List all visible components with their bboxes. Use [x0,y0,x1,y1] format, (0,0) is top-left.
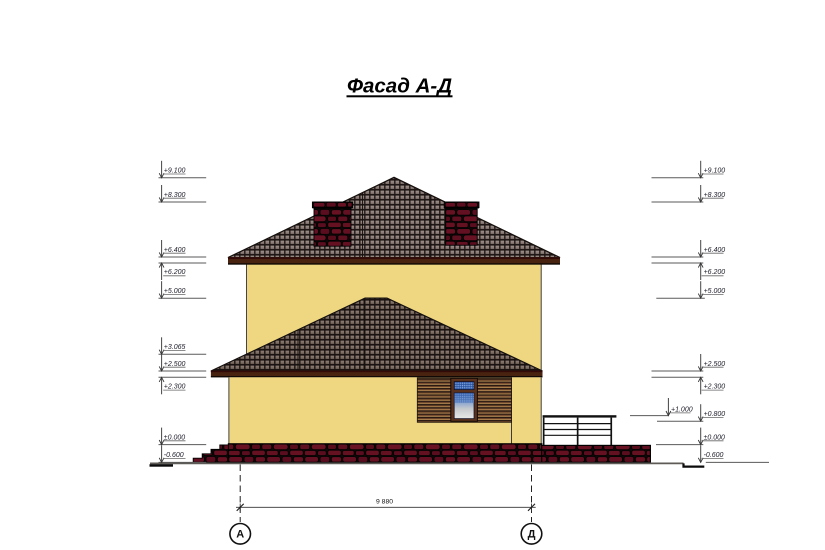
svg-text:+6.400: +6.400 [164,247,186,254]
svg-text:+6.400: +6.400 [704,247,726,254]
svg-text:+5.000: +5.000 [164,288,186,295]
svg-text:+8.300: +8.300 [164,192,186,199]
svg-text:-0.600: -0.600 [164,452,184,459]
svg-text:±0.000: ±0.000 [164,434,185,441]
svg-text:-0.600: -0.600 [704,452,724,459]
svg-text:+5.000: +5.000 [704,288,726,295]
svg-text:+0.800: +0.800 [704,411,726,418]
svg-text:+2.300: +2.300 [164,384,186,391]
svg-text:+9.100: +9.100 [164,168,186,175]
svg-text:+6.200: +6.200 [704,269,726,276]
svg-text:+8.300: +8.300 [704,192,726,199]
svg-text:9 880: 9 880 [376,499,393,506]
svg-text:+2.500: +2.500 [704,361,726,368]
svg-text:+2.300: +2.300 [704,384,726,391]
svg-text:+3.065: +3.065 [164,344,186,351]
svg-text:+2.500: +2.500 [164,361,186,368]
svg-text:+1.000: +1.000 [671,406,693,413]
svg-text:+6.200: +6.200 [164,269,186,276]
svg-text:Д: Д [528,529,536,541]
svg-text:±0.000: ±0.000 [704,434,725,441]
svg-text:Фасад А-Д: Фасад А-Д [347,75,452,98]
svg-text:А: А [236,529,244,541]
svg-text:+9.100: +9.100 [704,168,726,175]
